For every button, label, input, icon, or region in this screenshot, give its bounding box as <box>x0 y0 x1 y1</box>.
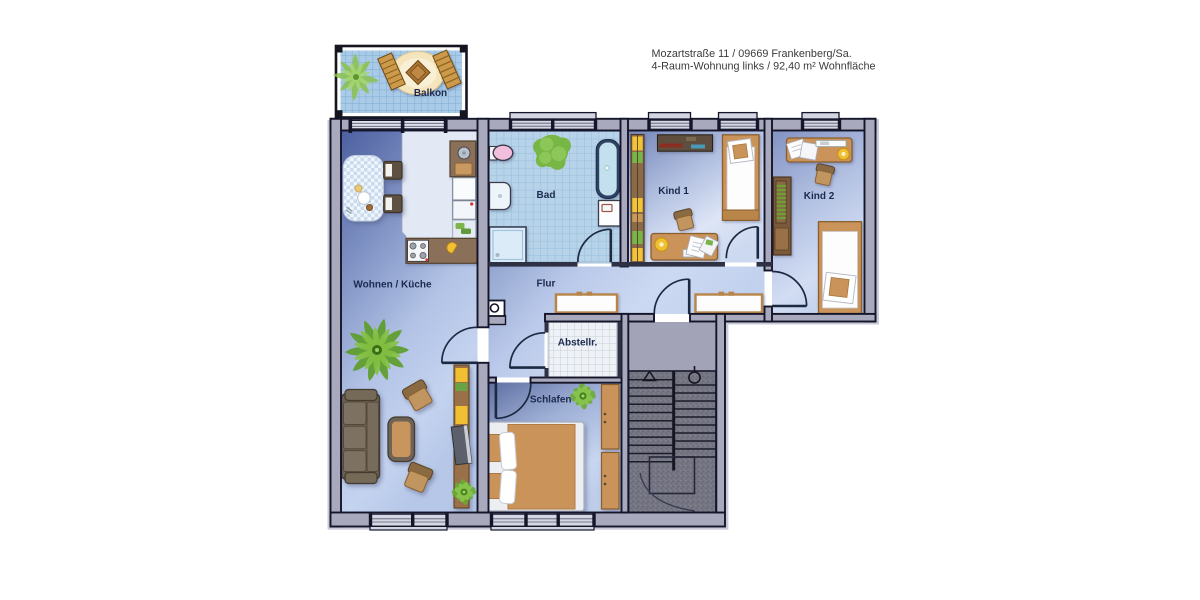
svg-text:Kind 1: Kind 1 <box>658 186 689 197</box>
svg-text:Kind 2: Kind 2 <box>804 191 835 202</box>
svg-text:Abstellr.: Abstellr. <box>558 338 598 349</box>
svg-text:Schlafen: Schlafen <box>530 394 572 405</box>
svg-text:4-Raum-Wohnung links / 92,40 m: 4-Raum-Wohnung links / 92,40 m² Wohnfläc… <box>652 60 876 72</box>
svg-text:Flur: Flur <box>537 279 556 290</box>
svg-text:Wohnen / Küche: Wohnen / Küche <box>353 279 432 290</box>
svg-text:Balkon: Balkon <box>414 88 447 99</box>
svg-text:Mozartstraße 11 / 09669 Franke: Mozartstraße 11 / 09669 Frankenberg/Sa. <box>652 48 852 60</box>
svg-text:Bad: Bad <box>537 190 556 201</box>
